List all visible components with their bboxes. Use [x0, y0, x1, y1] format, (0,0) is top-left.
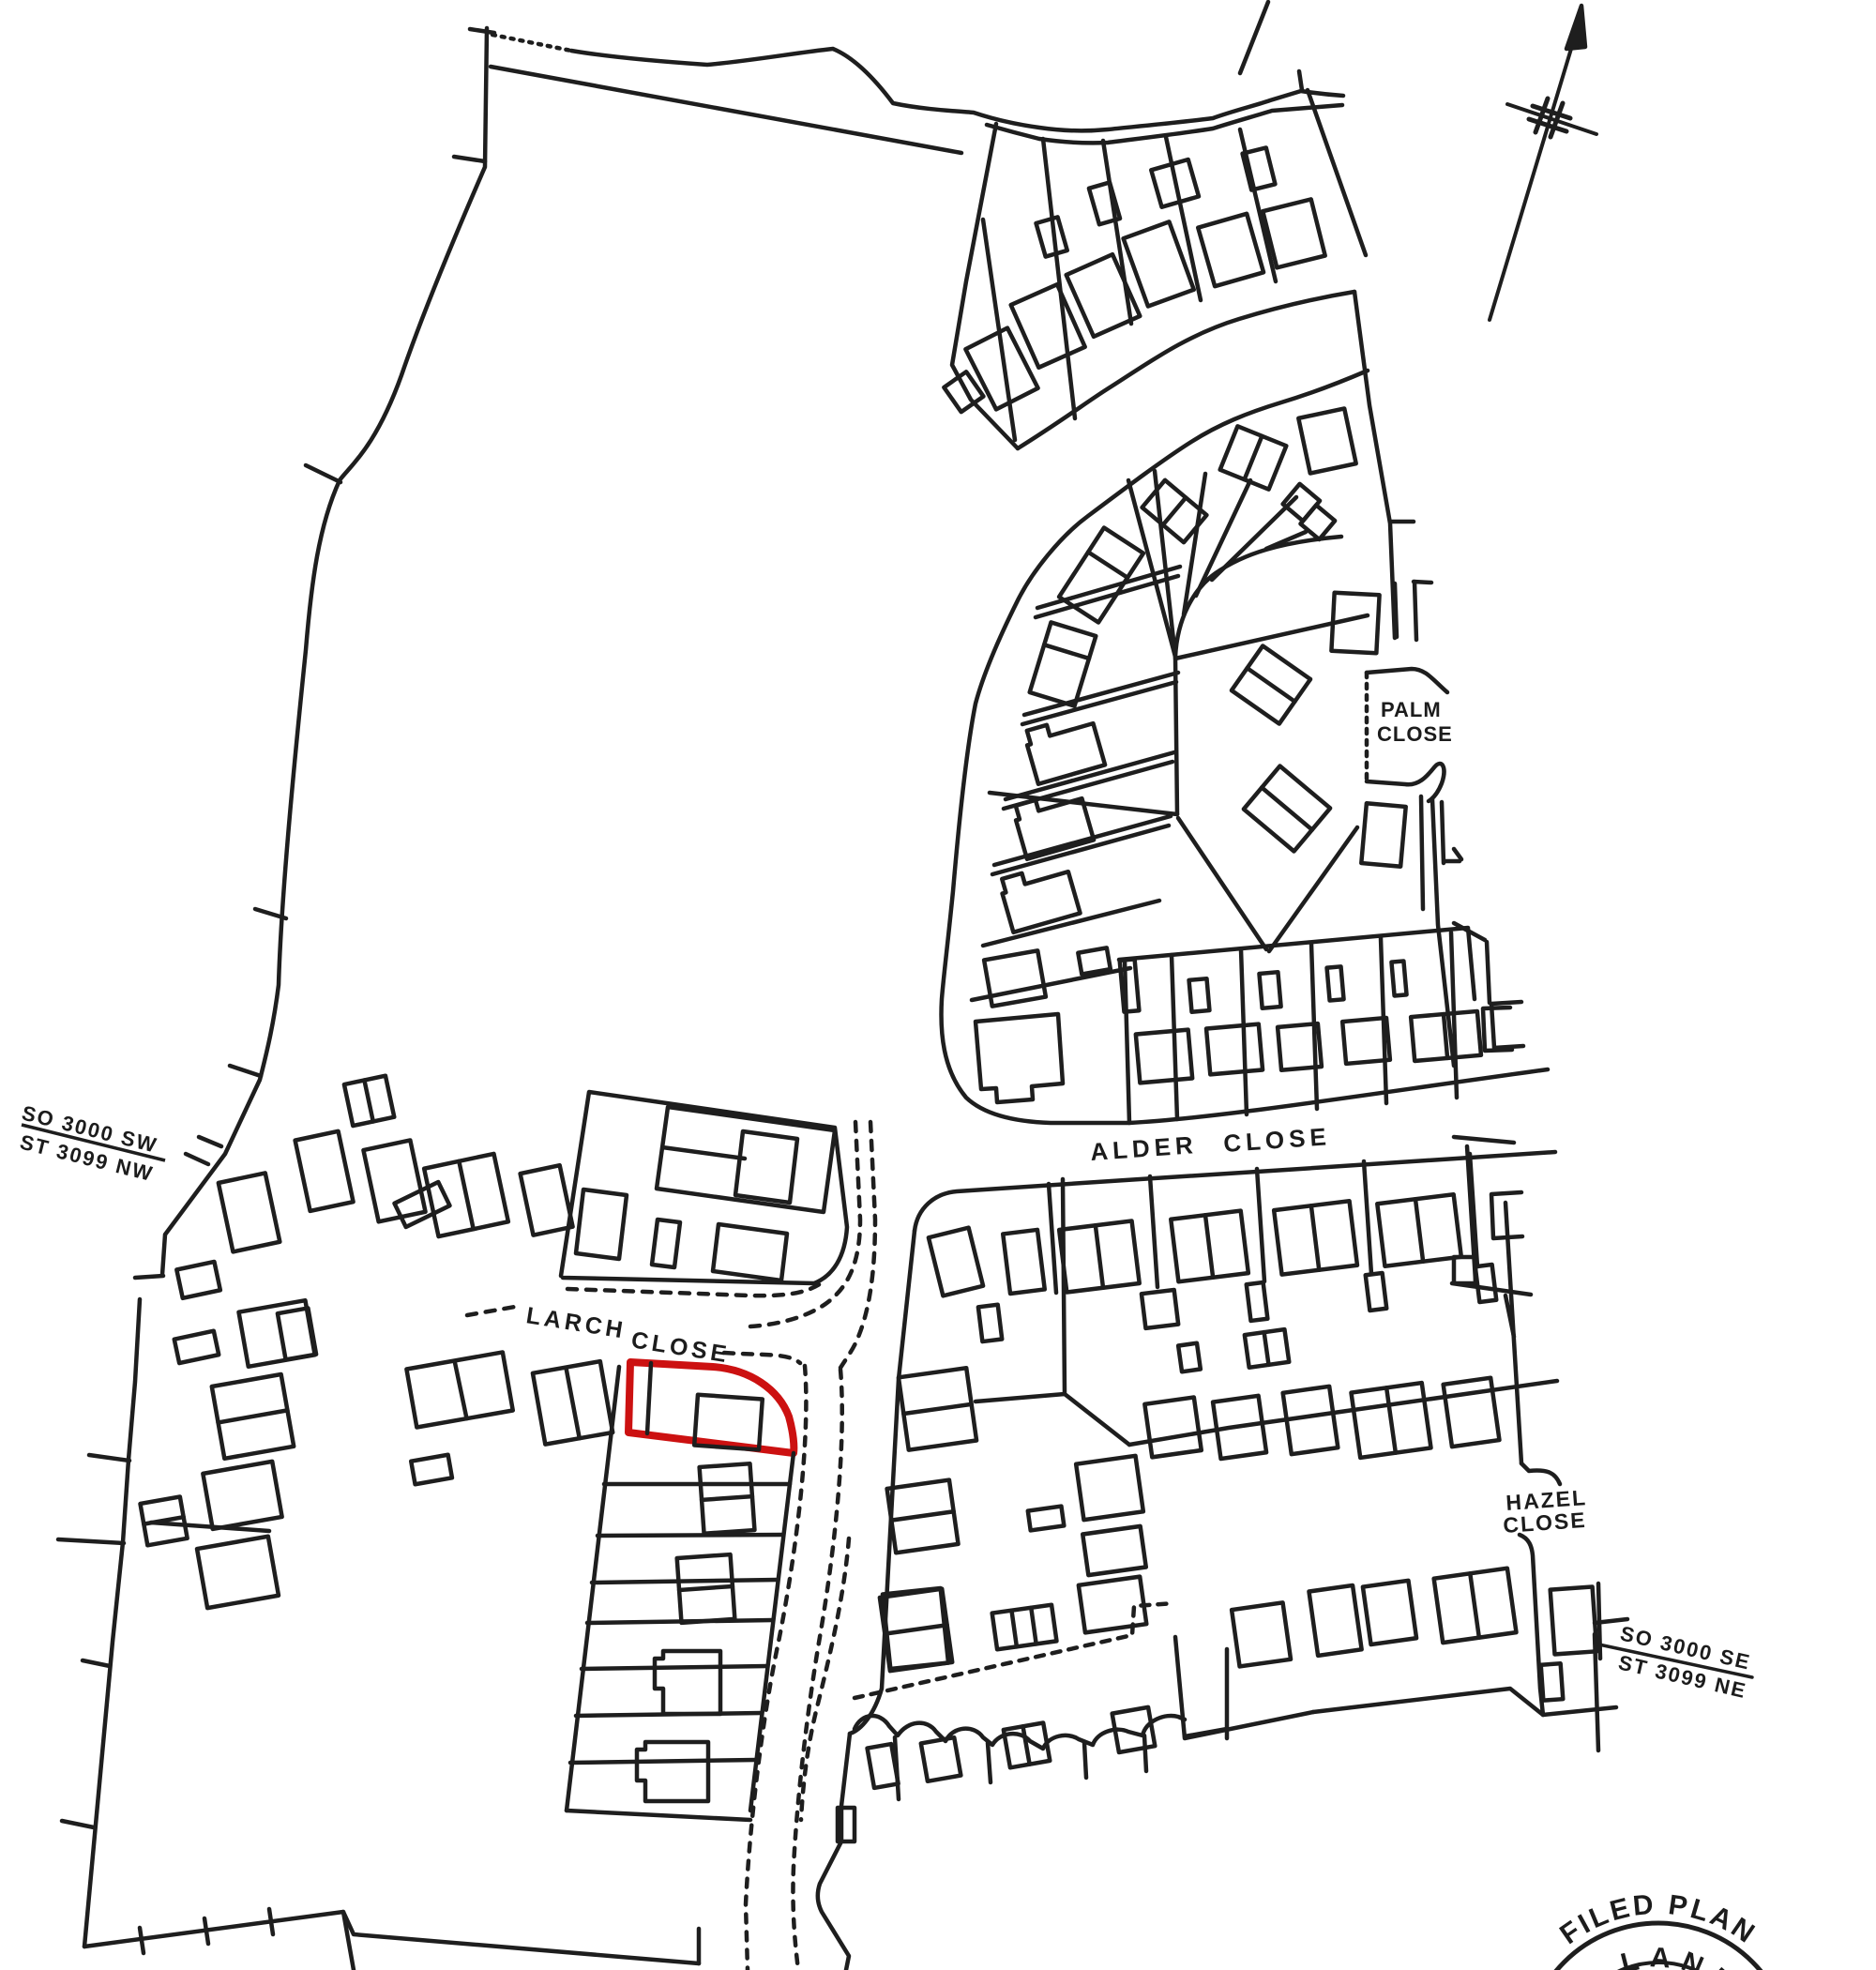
svg-text:CLOSE: CLOSE [1377, 722, 1453, 746]
svg-text:PALM: PALM [1381, 698, 1442, 721]
